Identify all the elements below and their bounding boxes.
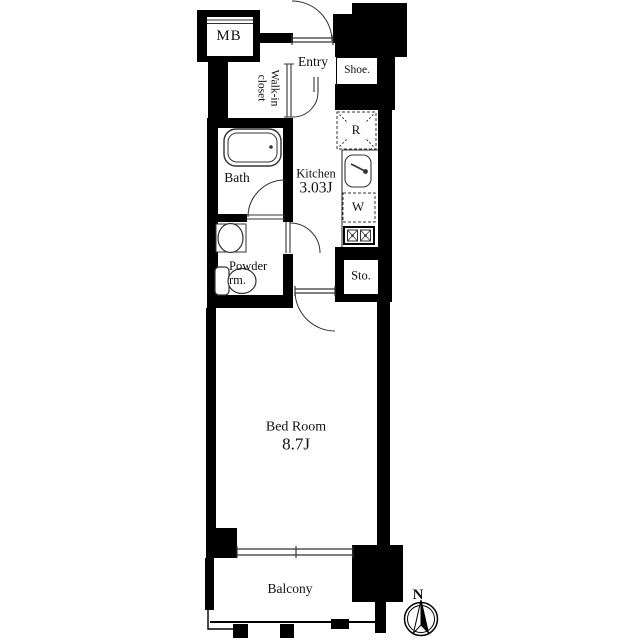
wall-powder-bottom <box>207 295 293 308</box>
wall-kitchen-left-upper <box>283 128 293 222</box>
entry-kitchen-door-leaf <box>314 77 318 92</box>
wall-bath-bottom <box>210 214 247 222</box>
bedroom-door-arc <box>295 291 335 331</box>
powder-room-label-line1: Powder <box>229 259 267 273</box>
bedroom-door-sill <box>295 286 335 296</box>
wall-below-shoe <box>335 84 378 110</box>
entry-kitchen-door-arc <box>293 92 318 117</box>
wall-below-column <box>375 602 386 633</box>
compass-icon <box>405 600 438 636</box>
wall-top-right-mass <box>352 3 407 57</box>
entry-label: Entry <box>298 55 328 69</box>
walk-in-closet-label-line1: Walk-in <box>269 70 281 107</box>
kitchen-label-size: 3.03J <box>296 180 336 196</box>
mb-label: MB <box>216 29 241 45</box>
balcony-label: Balcony <box>268 582 313 596</box>
walk-in-closet-label: Walk-in closet <box>255 70 280 107</box>
wall-top-left-of-door <box>253 33 293 43</box>
floorplan-drawing <box>0 0 640 640</box>
washer-label: W <box>352 200 364 214</box>
bedroom-label-name: Bed Room <box>266 421 326 436</box>
balcony-window <box>237 546 353 558</box>
powder-door-arc <box>290 223 320 253</box>
bath-label: Bath <box>224 171 250 185</box>
wall-bedroom-corner-block <box>206 528 237 558</box>
closet-sliding-door <box>284 64 294 117</box>
wall-below-mb <box>208 56 228 118</box>
refrigerator-label: R <box>352 123 361 137</box>
balcony-railing <box>208 610 376 638</box>
washbasin-icon <box>216 224 246 253</box>
front-door-sill <box>292 35 333 45</box>
bedroom-label: Bed Room 8.7J <box>266 421 326 454</box>
railing-post <box>331 619 349 629</box>
storage-label: Sto. <box>351 269 371 282</box>
wall-right-mid <box>378 110 392 300</box>
kitchen-sink-icon <box>345 155 371 187</box>
wall-closet-bottom <box>218 118 293 128</box>
bath-door-arc <box>248 180 285 217</box>
wall-left-bedroom <box>206 308 216 528</box>
powder-room-label: Powder rm. <box>229 259 267 287</box>
railing-post <box>233 624 248 638</box>
walls <box>197 3 407 633</box>
bathtub-icon <box>224 129 281 166</box>
compass-needle-east <box>421 600 429 633</box>
kitchen-label: Kitchen 3.03J <box>296 167 336 196</box>
wall-bottom-right-column <box>352 545 403 602</box>
compass-north-label: N <box>413 588 424 604</box>
bath-door-sill <box>247 215 285 219</box>
stove-icon <box>344 227 374 244</box>
wall-sto-top <box>335 247 378 262</box>
compass-needle-west <box>414 600 422 633</box>
wall-right-upper <box>378 57 395 110</box>
powder-room-label-line2: rm. <box>229 273 246 287</box>
wall-above-shoe <box>335 38 355 57</box>
wall-right-bedroom <box>377 300 390 545</box>
bedroom-label-size: 8.7J <box>266 435 326 453</box>
powder-door-leaf <box>286 222 290 253</box>
walk-in-closet-label-line2: closet <box>256 75 268 102</box>
railing-post <box>280 624 294 638</box>
wall-balcony-left <box>205 558 214 610</box>
shoe-label: Shoe. <box>344 64 370 76</box>
front-door-arc <box>292 1 332 41</box>
floorplan-canvas: MB Walk-in closet Entry Shoe. Kitchen 3.… <box>0 0 640 640</box>
